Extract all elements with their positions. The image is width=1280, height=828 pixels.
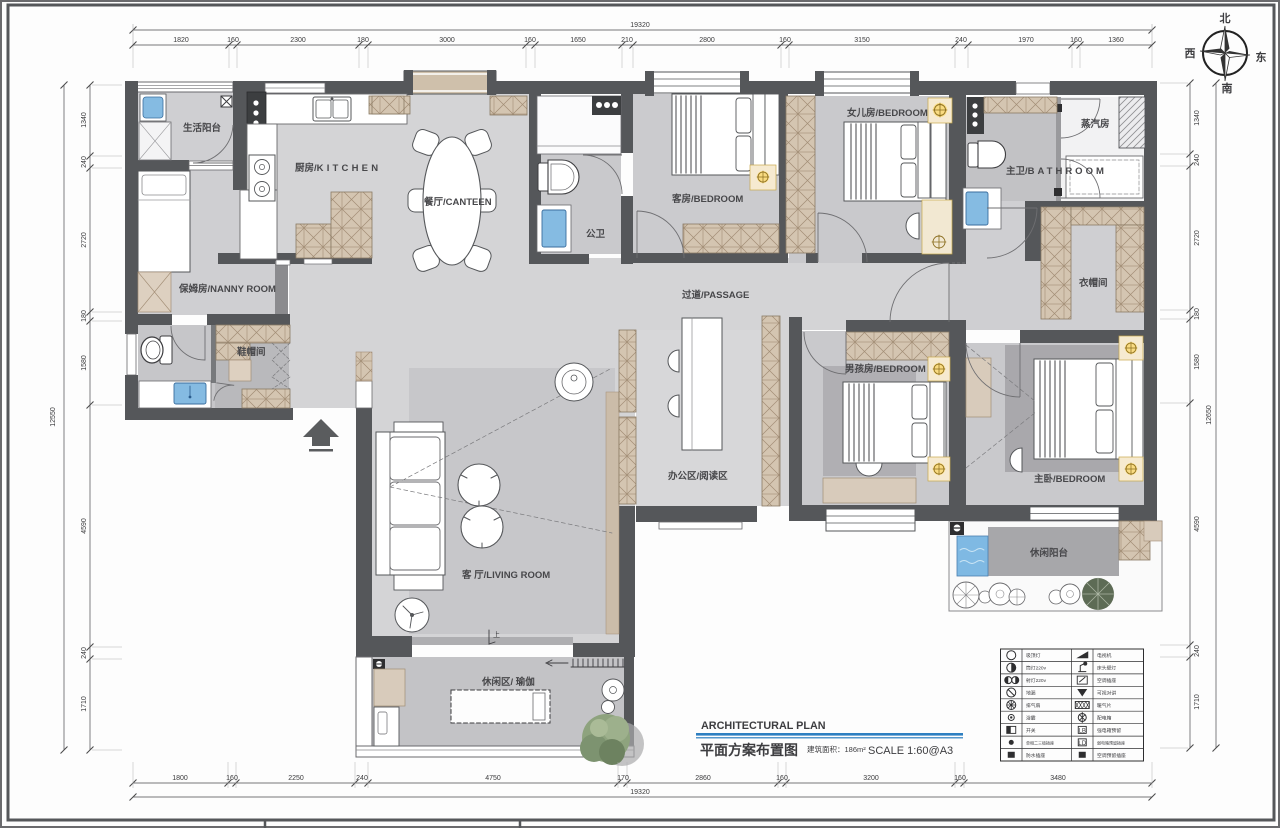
- svg-text:公卫: 公卫: [586, 229, 606, 240]
- svg-text:空调预留插座: 空调预留插座: [1097, 752, 1126, 759]
- svg-text:1820: 1820: [173, 37, 189, 44]
- svg-text:筒灯220v: 筒灯220v: [1026, 665, 1047, 672]
- svg-text:160: 160: [226, 775, 238, 782]
- svg-text:LD: LD: [1078, 741, 1086, 747]
- svg-text:1580: 1580: [1194, 354, 1201, 370]
- svg-text:弱电箱预留插座: 弱电箱预留插座: [1097, 739, 1125, 745]
- svg-text:主卫/BATHROOM: 主卫/BATHROOM: [1006, 165, 1107, 177]
- svg-text:女儿房/BEDROOM: 女儿房/BEDROOM: [847, 107, 928, 119]
- svg-text:2720: 2720: [1194, 230, 1201, 246]
- svg-text:餐厅/CANTEEN: 餐厅/CANTEEN: [423, 196, 492, 208]
- svg-text:休闲阳台: 休闲阳台: [1029, 547, 1069, 559]
- svg-text:客 厅/LIVING ROOM: 客 厅/LIVING ROOM: [461, 569, 550, 581]
- svg-text:19320: 19320: [630, 22, 650, 29]
- svg-text:保姆房/NANNY ROOM: 保姆房/NANNY ROOM: [178, 283, 276, 295]
- svg-text:160: 160: [1070, 37, 1082, 44]
- svg-text:1710: 1710: [1194, 694, 1201, 710]
- svg-text:12650: 12650: [1206, 405, 1213, 425]
- svg-text:射灯220v: 射灯220v: [1026, 677, 1047, 684]
- svg-text:210: 210: [621, 37, 633, 44]
- svg-text:鞋帽间: 鞋帽间: [237, 346, 266, 358]
- svg-text:19320: 19320: [630, 789, 650, 796]
- svg-text:240: 240: [81, 647, 88, 659]
- svg-text:3000: 3000: [439, 37, 455, 44]
- svg-text:180: 180: [81, 310, 88, 322]
- svg-text:2860: 2860: [695, 775, 711, 782]
- svg-text:男孩房/BEDROOM: 男孩房/BEDROOM: [845, 363, 926, 375]
- svg-text:暖气片: 暖气片: [1097, 702, 1112, 709]
- svg-text:1360: 1360: [1108, 37, 1124, 44]
- svg-text:过道/PASSAGE: 过道/PASSAGE: [682, 289, 749, 301]
- svg-text:衣帽间: 衣帽间: [1079, 277, 1108, 289]
- svg-text:排气扇: 排气扇: [1026, 702, 1041, 709]
- svg-text:上: 上: [493, 630, 500, 639]
- svg-text:主卧/BEDROOM: 主卧/BEDROOM: [1034, 473, 1105, 485]
- svg-text:160: 160: [776, 775, 788, 782]
- svg-text:LB: LB: [1079, 728, 1086, 734]
- svg-text:3200: 3200: [863, 775, 879, 782]
- svg-text:电视机: 电视机: [1097, 652, 1112, 659]
- svg-text:厨房/KITCHEN: 厨房/KITCHEN: [295, 162, 381, 174]
- svg-text:平面方案布置图: 平面方案布置图: [700, 742, 798, 758]
- svg-text:床头壁灯: 床头壁灯: [1097, 665, 1116, 672]
- svg-text:吸顶灯: 吸顶灯: [1026, 652, 1041, 659]
- svg-text:1580: 1580: [81, 355, 88, 371]
- svg-text:蒸汽房: 蒸汽房: [1081, 118, 1110, 130]
- svg-text:生活阳台: 生活阳台: [183, 122, 222, 134]
- svg-text:配电箱: 配电箱: [1097, 714, 1112, 721]
- svg-text:可视对讲: 可视对讲: [1097, 690, 1116, 697]
- svg-text:北: 北: [1220, 11, 1231, 25]
- svg-text:2800: 2800: [699, 37, 715, 44]
- svg-text:240: 240: [356, 775, 368, 782]
- svg-text:浴霸: 浴霸: [1026, 714, 1036, 721]
- svg-text:12550: 12550: [50, 407, 57, 427]
- svg-text:强电箱预留: 强电箱预留: [1097, 727, 1121, 734]
- svg-text:开关: 开关: [1026, 727, 1036, 734]
- svg-text:建筑面积：186m²: 建筑面积：186m²: [807, 744, 866, 754]
- svg-text:4590: 4590: [1194, 516, 1201, 532]
- svg-text:240: 240: [1194, 154, 1201, 166]
- svg-text:防水插座: 防水插座: [1026, 752, 1045, 759]
- svg-text:1650: 1650: [570, 37, 586, 44]
- svg-text:180: 180: [357, 37, 369, 44]
- svg-text:240: 240: [81, 156, 88, 168]
- svg-text:2720: 2720: [81, 232, 88, 248]
- svg-text:1970: 1970: [1018, 37, 1034, 44]
- svg-text:2300: 2300: [290, 37, 306, 44]
- svg-text:1340: 1340: [81, 112, 88, 128]
- svg-text:1340: 1340: [1194, 110, 1201, 126]
- svg-text:地漏: 地漏: [1026, 690, 1036, 697]
- svg-text:240: 240: [955, 37, 967, 44]
- svg-text:160: 160: [954, 775, 966, 782]
- svg-text:160: 160: [779, 37, 791, 44]
- svg-text:南: 南: [1222, 81, 1233, 95]
- svg-text:ARCHITECTURAL PLAN: ARCHITECTURAL PLAN: [701, 720, 826, 732]
- svg-text:1800: 1800: [172, 775, 188, 782]
- svg-text:3480: 3480: [1050, 775, 1066, 782]
- svg-text:西: 西: [1185, 47, 1196, 60]
- svg-text:东: 东: [1256, 50, 1267, 64]
- svg-text:4590: 4590: [81, 518, 88, 534]
- svg-text:休闲区/ 瑜伽: 休闲区/ 瑜伽: [481, 676, 535, 688]
- svg-text:办公区/阅读区: 办公区/阅读区: [668, 470, 728, 482]
- svg-text:160: 160: [524, 37, 536, 44]
- svg-text:SCALE 1:60@A3: SCALE 1:60@A3: [868, 745, 953, 757]
- svg-text:2250: 2250: [288, 775, 304, 782]
- svg-text:240: 240: [1194, 645, 1201, 657]
- svg-text:170: 170: [617, 775, 629, 782]
- svg-text:4750: 4750: [485, 775, 501, 782]
- svg-text:160: 160: [227, 37, 239, 44]
- svg-text:客房/BEDROOM: 客房/BEDROOM: [671, 193, 743, 205]
- svg-text:3150: 3150: [854, 37, 870, 44]
- svg-text:180: 180: [1194, 308, 1201, 320]
- svg-text:空调插座: 空调插座: [1097, 677, 1116, 684]
- svg-text:单相二三极插座: 单相二三极插座: [1026, 739, 1054, 745]
- svg-text:1710: 1710: [81, 696, 88, 712]
